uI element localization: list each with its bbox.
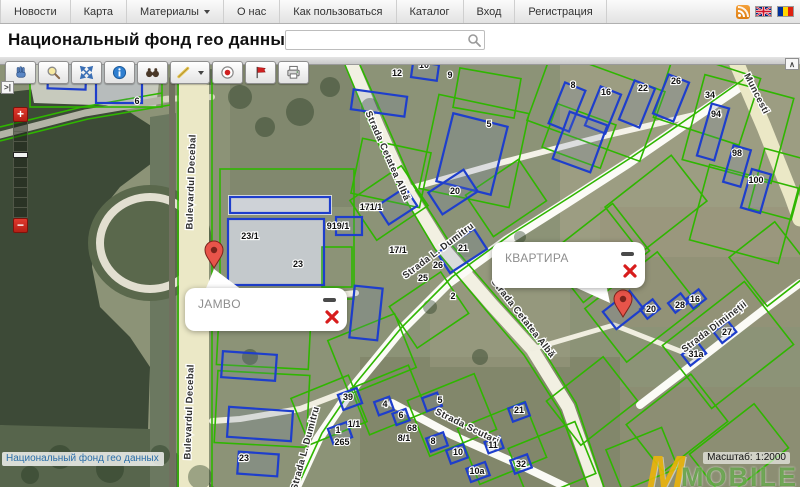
svg-text:8: 8	[570, 80, 575, 90]
svg-text:10a: 10a	[469, 466, 485, 476]
page-title: Национальный фонд гео данных	[8, 30, 295, 50]
flag-uk-icon[interactable]	[755, 6, 772, 17]
collapse-panel-button[interactable]: ∧	[785, 58, 799, 70]
map-popup-jambo: JAMBO	[185, 288, 347, 331]
svg-text:10: 10	[453, 447, 463, 457]
nav-item-materials[interactable]: Материалы	[127, 0, 224, 23]
zoom-slider-cell[interactable]	[13, 208, 28, 218]
search-icon[interactable]	[467, 33, 481, 47]
top-navbar: Новости Карта Материалы О нас Как пользо…	[0, 0, 800, 24]
record-icon[interactable]	[212, 61, 243, 84]
svg-text:919/1: 919/1	[327, 221, 350, 231]
svg-text:8/1: 8/1	[398, 433, 411, 443]
svg-text:8: 8	[430, 436, 435, 446]
nav-item-map[interactable]: Карта	[71, 0, 127, 23]
header: Национальный фонд гео данных	[0, 24, 800, 57]
svg-text:16: 16	[601, 87, 611, 97]
zoom-slider-cell[interactable]	[13, 198, 28, 208]
rss-icon[interactable]	[736, 5, 750, 19]
svg-text:5: 5	[437, 395, 442, 405]
svg-text:26: 26	[671, 76, 681, 86]
map-popup-kvartira: КВАРТИРА	[492, 242, 645, 288]
search-input[interactable]	[285, 30, 485, 50]
nav-item-login[interactable]: Вход	[464, 0, 516, 23]
svg-text:12: 12	[392, 68, 402, 78]
nav-item-catalog[interactable]: Каталог	[397, 0, 464, 23]
svg-text:20: 20	[646, 304, 656, 314]
zoom-slider-cell[interactable]	[13, 132, 28, 142]
svg-text:6: 6	[398, 410, 403, 420]
zoom-slider-cell[interactable]	[13, 168, 28, 178]
svg-text:2: 2	[450, 291, 455, 301]
nav-item-news[interactable]: Новости	[0, 0, 71, 23]
nav-item-howto[interactable]: Как пользоваться	[280, 0, 396, 23]
map-container: Bulevardul DecebalBulevardul DecebalStra…	[0, 57, 800, 487]
flag-icon[interactable]	[245, 61, 276, 84]
svg-text:94: 94	[711, 109, 721, 119]
svg-text:4: 4	[382, 399, 387, 409]
zoom-slider-cell[interactable]	[13, 158, 28, 168]
svg-text:1/1: 1/1	[348, 419, 361, 429]
map-toolbar	[5, 61, 309, 84]
svg-text:100: 100	[748, 175, 763, 185]
svg-text:25: 25	[418, 273, 428, 283]
nav-item-register[interactable]: Регистрация	[515, 0, 606, 23]
svg-text:68: 68	[407, 423, 417, 433]
binoculars-icon[interactable]	[137, 61, 168, 84]
svg-text:17/1: 17/1	[389, 245, 407, 255]
svg-text:26: 26	[433, 260, 443, 270]
svg-text:6: 6	[134, 96, 139, 106]
zoom-slider-cell[interactable]	[13, 178, 28, 188]
zoom-out-button[interactable]: −	[13, 218, 28, 233]
zoom-slider-cell[interactable]	[13, 142, 28, 152]
info-icon[interactable]	[104, 61, 135, 84]
popup-minimize-button[interactable]	[323, 298, 336, 302]
svg-text:21: 21	[514, 405, 524, 415]
popup-close-icon[interactable]	[623, 264, 637, 278]
svg-text:16: 16	[690, 294, 700, 304]
svg-text:27: 27	[722, 327, 732, 337]
svg-text:11: 11	[488, 440, 498, 450]
measure-line-icon[interactable]	[170, 61, 210, 84]
flag-romania-icon[interactable]	[777, 6, 794, 17]
zoom-slider-cell[interactable]	[13, 122, 28, 132]
svg-text:98: 98	[732, 148, 742, 158]
svg-text:23: 23	[239, 453, 249, 463]
svg-text:20: 20	[450, 186, 460, 196]
svg-text:32: 32	[516, 459, 526, 469]
print-icon[interactable]	[278, 61, 309, 84]
nav-right-icons	[736, 0, 800, 23]
svg-text:9: 9	[447, 70, 452, 80]
map-attribution-link[interactable]: Национальный фонд гео данных	[2, 452, 164, 466]
zoom-control: + −	[13, 107, 28, 233]
chevron-down-icon	[204, 10, 210, 14]
svg-text:5: 5	[486, 119, 491, 129]
svg-text:21: 21	[458, 243, 468, 253]
search-box	[285, 30, 485, 50]
nav-item-about[interactable]: О нас	[224, 0, 280, 23]
zoom-magnifier-icon[interactable]	[38, 61, 69, 84]
svg-text:28: 28	[675, 300, 685, 310]
popup-title: КВАРТИРА	[505, 251, 569, 265]
popup-minimize-button[interactable]	[621, 252, 634, 256]
zoom-slider-track[interactable]	[13, 122, 28, 218]
move-arrows-icon[interactable]	[71, 61, 102, 84]
svg-text:39: 39	[343, 392, 353, 402]
map-scale-label: Масштаб: 1:2000	[703, 452, 790, 464]
zoom-in-button[interactable]: +	[13, 107, 28, 122]
svg-text:23: 23	[293, 259, 303, 269]
chevron-down-icon	[198, 71, 204, 75]
svg-text:22: 22	[638, 83, 648, 93]
popup-close-icon[interactable]	[325, 310, 339, 324]
svg-text:34: 34	[705, 90, 715, 100]
map-canvas[interactable]: Bulevardul DecebalBulevardul DecebalStra…	[0, 57, 800, 487]
svg-text:1: 1	[335, 425, 340, 435]
expand-panel-button[interactable]: >|	[1, 81, 14, 94]
zoom-slider-cell[interactable]	[13, 188, 28, 198]
svg-text:23/1: 23/1	[241, 231, 259, 241]
popup-title: JAMBO	[198, 297, 241, 311]
svg-text:171/1: 171/1	[360, 202, 383, 212]
svg-text:31a: 31a	[688, 349, 704, 359]
svg-text:265: 265	[334, 437, 349, 447]
